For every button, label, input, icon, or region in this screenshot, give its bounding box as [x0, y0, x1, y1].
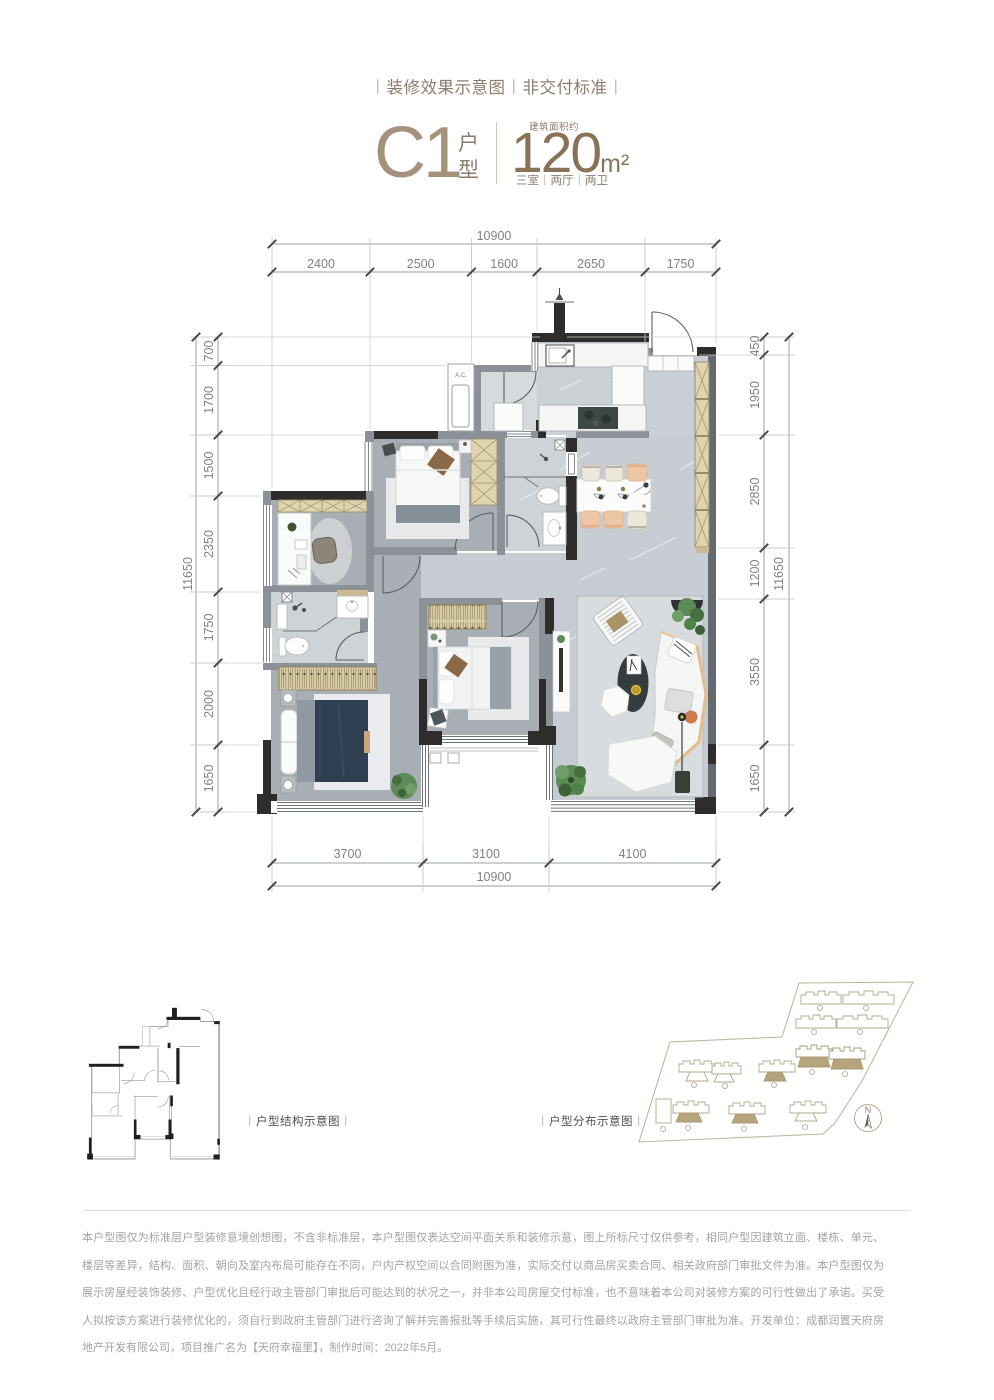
svg-text:450: 450 [748, 336, 762, 357]
svg-text:A.C.: A.C. [455, 373, 467, 379]
svg-text:2000: 2000 [202, 690, 216, 718]
svg-text:1950: 1950 [748, 381, 762, 409]
svg-text:4100: 4100 [619, 847, 647, 861]
svg-text:700: 700 [202, 341, 216, 362]
svg-text:1500: 1500 [202, 452, 216, 480]
svg-text:1600: 1600 [490, 257, 518, 271]
svg-text:11650: 11650 [772, 557, 786, 591]
svg-text:3700: 3700 [334, 847, 362, 861]
svg-text:10900: 10900 [477, 229, 512, 243]
svg-text:2350: 2350 [202, 530, 216, 558]
svg-text:2400: 2400 [307, 257, 335, 271]
svg-text:1750: 1750 [202, 614, 216, 642]
svg-text:3550: 3550 [748, 658, 762, 686]
svg-text:11650: 11650 [181, 557, 195, 591]
svg-text:10900: 10900 [477, 870, 512, 884]
svg-text:2500: 2500 [407, 257, 435, 271]
svg-text:1750: 1750 [667, 257, 695, 271]
svg-text:1650: 1650 [202, 765, 216, 793]
svg-text:1200: 1200 [748, 560, 762, 588]
svg-text:2650: 2650 [577, 257, 605, 271]
svg-text:N: N [865, 1105, 872, 1115]
svg-text:2850: 2850 [748, 478, 762, 506]
svg-text:3100: 3100 [472, 847, 500, 861]
svg-text:1700: 1700 [202, 386, 216, 414]
svg-text:1650: 1650 [748, 765, 762, 793]
